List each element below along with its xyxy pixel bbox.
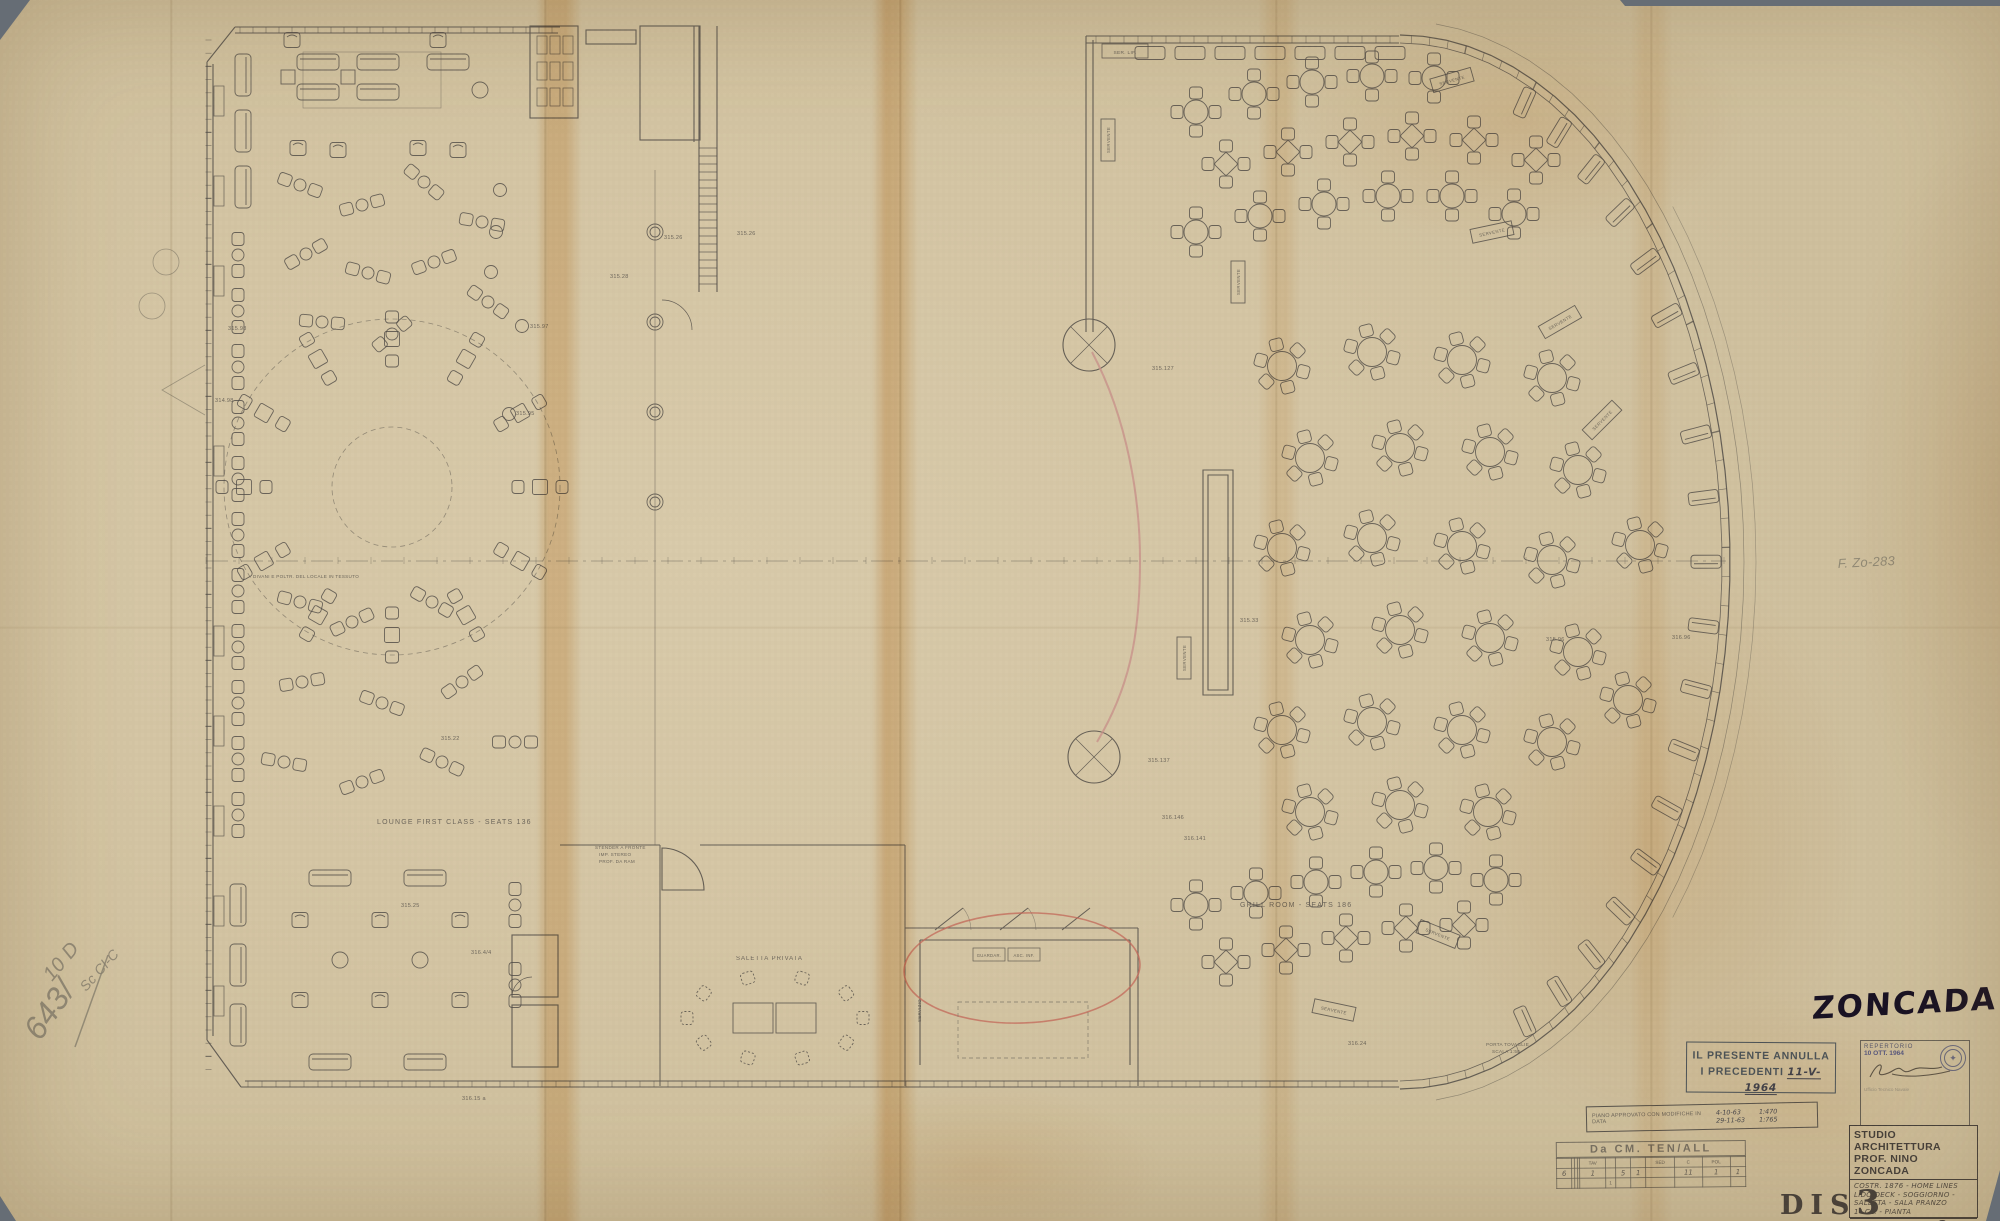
plan-furniture <box>329 607 375 637</box>
plan-furniture <box>371 315 413 353</box>
plan-furniture <box>1523 349 1580 406</box>
plan-furniture <box>1135 47 1165 60</box>
plan-annotation: SERVIZIO <box>917 999 922 1022</box>
plan-annotation: 315.26 <box>664 235 683 241</box>
plan-furniture <box>1630 848 1662 876</box>
cm-table-cell <box>1630 1158 1645 1168</box>
plan-furniture <box>1691 555 1721 568</box>
plan-furniture <box>1255 47 1285 60</box>
cm-table-cell <box>1556 1158 1571 1168</box>
plan-furniture <box>1229 69 1279 119</box>
plan-furniture <box>1253 519 1310 576</box>
cm-table-cell <box>1730 1157 1745 1167</box>
dis-number-label: DIS3 <box>1780 1183 1880 1221</box>
serving-station: SERVENTE <box>1177 637 1191 679</box>
cm-table-cell: TAV <box>1580 1158 1606 1168</box>
plan-annotation: 315.98 <box>228 326 247 332</box>
plan-furniture <box>292 993 308 1008</box>
emblem-stamp-icon: ✦ <box>1940 1045 1966 1071</box>
plan-furniture <box>1215 47 1245 60</box>
repertorio-stamp: REPERTORIO 10 OTT. 1964 ✦ Ufficio Tecnic… <box>1860 1040 1970 1126</box>
blueprint-sheet: SERVENTESERVENTESERVENTESERVENTESERVENTE… <box>0 0 2000 1221</box>
plan-furniture <box>385 332 400 347</box>
plan-furniture <box>1363 171 1413 221</box>
serving-station: SERVENTE <box>1101 119 1115 161</box>
serving-station: SERVENTE <box>1231 261 1245 303</box>
plan-annotation: 315.127 <box>1152 366 1174 372</box>
plan-furniture <box>1577 939 1606 971</box>
plan-furniture <box>403 163 445 201</box>
plan-furniture <box>1688 489 1719 506</box>
plan-furniture <box>1326 118 1374 166</box>
plan-furniture <box>1546 975 1573 1007</box>
plan-furniture <box>1427 171 1477 221</box>
plan-annotation: GRILL ROOM - SEATS 186 <box>1240 902 1352 909</box>
plan-furniture <box>372 993 388 1008</box>
plan-furniture <box>232 401 244 446</box>
repertorio-subtext: Ufficio Tecnico Navale <box>1864 1087 1966 1093</box>
plan-furniture <box>1629 247 1661 275</box>
plan-furniture <box>1450 116 1498 164</box>
cm-table-cell <box>1605 1158 1615 1168</box>
plan-annotation: 315.22 <box>441 736 460 742</box>
plan-furniture <box>1175 47 1205 60</box>
plan-furniture <box>1253 701 1310 758</box>
plan-furniture <box>427 54 469 70</box>
plan-furniture <box>235 54 251 96</box>
plan-furniture <box>1343 693 1400 750</box>
serving-station: SERVENTE <box>1312 999 1356 1021</box>
plan-furniture <box>357 84 399 100</box>
cm-table-cell <box>1730 1177 1745 1187</box>
plan-furniture <box>1459 783 1516 840</box>
dance-floor <box>224 319 560 655</box>
plan-furniture <box>1202 938 1250 986</box>
plan-furniture <box>456 605 476 625</box>
plan-annotation: PORTA TOVAGLIE <box>1486 1042 1529 1047</box>
plan-furniture <box>1523 713 1580 770</box>
plan-furniture <box>261 752 307 772</box>
plan-furniture <box>1512 136 1560 184</box>
plan-furniture <box>339 769 385 796</box>
plan-annotation: 315.137 <box>1148 758 1170 764</box>
plan-furniture <box>1287 57 1337 107</box>
plan-annotation: Sc Cl-C <box>76 945 122 994</box>
plan-furniture <box>1650 302 1683 328</box>
serving-station: SERVENTE <box>1538 305 1581 338</box>
plan-annotation: IMP. STEREO <box>599 852 631 857</box>
cm-table-cell <box>1606 1168 1616 1178</box>
cm-table-cell: 1 <box>1606 1178 1616 1188</box>
plan-furniture <box>1235 191 1285 241</box>
architect-name: PROF. NINO ZONCADA <box>1854 1153 1973 1177</box>
plan-furniture <box>235 166 251 208</box>
plan-furniture <box>232 345 244 390</box>
plan-furniture <box>1512 86 1536 119</box>
plan-furniture <box>1343 509 1400 566</box>
plan-furniture <box>308 605 328 625</box>
cm-table-cell <box>1616 1178 1631 1188</box>
cm-table-title: Da CM. TEN/ALL <box>1556 1140 1746 1158</box>
plan-furniture <box>1295 47 1325 60</box>
plan-furniture <box>1171 880 1221 930</box>
plan-furniture <box>232 625 244 670</box>
plan-furniture <box>1433 701 1490 758</box>
plan-furniture <box>1667 362 1700 385</box>
plan-annotation: 316.146 <box>1162 815 1184 821</box>
plan-annotation: GUARDAR. <box>977 953 1002 958</box>
plan-annotation: 315.96 <box>1546 637 1565 643</box>
plan-furniture <box>1347 51 1397 101</box>
plan-furniture <box>456 349 476 369</box>
plan-furniture <box>1253 337 1310 394</box>
cm-table-cell: 1 <box>1580 1168 1606 1178</box>
plan-furniture <box>1680 679 1712 699</box>
plan-furniture <box>410 141 426 156</box>
serving-station-label: SERVENTE <box>1236 269 1241 295</box>
plan-furniture <box>309 1054 351 1070</box>
plan-furniture <box>1513 1005 1537 1038</box>
plan-annotation: 643/ <box>16 971 84 1046</box>
plan-furniture <box>466 284 510 320</box>
plan-furniture <box>1440 901 1488 949</box>
plan-annotation: 316.4/4 <box>471 950 491 956</box>
cm-table-cell <box>1580 1178 1606 1188</box>
plan-furniture <box>1299 179 1349 229</box>
plan-annotation: SER. LIF. <box>1114 50 1137 56</box>
plan-furniture <box>254 403 274 423</box>
plan-furniture <box>1281 611 1338 668</box>
plan-annotation: ASC. INF. <box>1013 953 1034 958</box>
plan-furniture <box>235 110 251 152</box>
plan-furniture <box>410 586 455 619</box>
plan-annotation: SALETTA PRIVATA <box>736 956 803 962</box>
cancel-stamp: IL PRESENTE ANNULLA I PRECEDENTI 11-V-19… <box>1686 1041 1836 1093</box>
plan-furniture <box>1231 868 1281 918</box>
plan-furniture <box>230 1004 246 1046</box>
plan-furniture <box>1433 517 1490 574</box>
cm-table-cell <box>1631 1178 1646 1188</box>
plan-annotation: PROF. DA RAM <box>599 859 635 864</box>
serving-station-label: SERVENTE <box>1591 409 1613 431</box>
plan-furniture <box>1611 516 1668 573</box>
plan-furniture <box>1171 207 1221 257</box>
plan-annotation: LOUNGE FIRST CLASS - SEATS 136 <box>377 819 532 826</box>
approval-strip: PIANO APPROVATO CON MODIFICHE IN DATA 4-… <box>1586 1102 1818 1133</box>
plan-furniture <box>1202 140 1250 188</box>
plan-furniture <box>404 1054 446 1070</box>
cm-table-cell <box>1646 1167 1675 1177</box>
plan-furniture <box>1411 843 1461 893</box>
cm-table-cell: POL <box>1702 1157 1730 1167</box>
plan-furniture <box>230 944 246 986</box>
plan-furniture <box>385 628 400 643</box>
plan-annotation: 315.26 <box>737 231 756 237</box>
serving-station-label: SERVENTE <box>1106 127 1111 153</box>
serving-station-label: SERVENTE <box>1182 645 1187 671</box>
cm-table-cell <box>1675 1177 1703 1187</box>
plan-furniture <box>1461 423 1518 480</box>
plan-furniture <box>290 141 306 156</box>
plan-furniture <box>1651 795 1684 821</box>
plan-annotation: 316.24 <box>1348 1041 1367 1047</box>
plan-furniture <box>292 913 308 928</box>
cm-table-cell <box>1615 1158 1630 1168</box>
plan-furniture <box>359 690 405 717</box>
plan-furniture <box>430 33 446 48</box>
plan-furniture <box>357 54 399 70</box>
cm-table-cell <box>1646 1177 1675 1187</box>
plan-furniture <box>1471 855 1521 905</box>
deck-plan-drawing: SERVENTESERVENTESERVENTESERVENTESERVENTE… <box>0 0 2000 1221</box>
plan-annotation: SCALA 1:50 <box>1492 1049 1520 1054</box>
plan-furniture <box>1171 87 1221 137</box>
plan-annotation: 315.97 <box>530 324 549 330</box>
approval-date-bottom: 29-11-63 <box>1716 1116 1745 1125</box>
plan-furniture <box>509 963 521 1008</box>
plan-furniture <box>1688 618 1719 635</box>
approval-text: PIANO APPROVATO CON MODIFICHE IN DATA <box>1592 1111 1710 1125</box>
plan-furniture <box>230 884 246 926</box>
plan-furniture <box>1371 776 1428 833</box>
cm-table-grid: TAVSEDCPOL615111111 <box>1556 1156 1746 1189</box>
plan-furniture <box>1605 896 1636 926</box>
plan-annotation: 315.33 <box>1240 618 1259 624</box>
plan-furniture <box>1680 424 1712 444</box>
plan-furniture <box>509 883 521 928</box>
plan-furniture <box>232 793 244 838</box>
plan-furniture <box>1549 623 1606 680</box>
plan-furniture <box>459 212 505 232</box>
plan-annotation: 315.28 <box>610 274 629 280</box>
plan-furniture <box>1599 671 1656 728</box>
pink-curtain-line <box>1092 352 1140 742</box>
plan-furniture <box>232 513 244 558</box>
plan-furniture <box>493 736 538 748</box>
plan-furniture <box>1335 47 1365 60</box>
plan-furniture <box>452 913 468 928</box>
plan-furniture <box>1322 914 1370 962</box>
studio-name: STUDIO ARCHITETTURA <box>1854 1129 1973 1153</box>
plan-furniture <box>1264 128 1312 176</box>
plan-furniture <box>330 143 346 158</box>
serving-station: SERVENTE <box>1582 400 1622 440</box>
plan-furniture <box>1281 429 1338 486</box>
cm-table-cell: 1 <box>1702 1167 1730 1177</box>
plan-furniture <box>232 681 244 726</box>
plan-furniture <box>1523 531 1580 588</box>
plan-furniture <box>1433 331 1490 388</box>
plan-furniture <box>277 172 323 199</box>
red-pencil-ellipse <box>902 909 1142 1027</box>
plan-furniture <box>411 249 457 276</box>
plan-furniture <box>1577 153 1606 185</box>
serving-station-label: SERVENTE <box>1548 314 1573 331</box>
plan-annotation: 315.25 <box>401 903 420 909</box>
cm-table-cell <box>1702 1177 1730 1187</box>
plan-furniture <box>309 870 351 886</box>
serving-station-label: SERVENTE <box>1479 227 1506 237</box>
cm-table-cell <box>1557 1178 1572 1188</box>
plan-annotation: DIVANI E POLTR. DEL LOCALE IN TESSUTO <box>253 574 359 579</box>
plan-furniture <box>1262 926 1310 974</box>
plan-annotation: 316.96 <box>1672 635 1691 641</box>
plan-furniture <box>1371 601 1428 658</box>
plan-furniture <box>452 993 468 1008</box>
plan-furniture <box>1343 323 1400 380</box>
plan-annotation: 314.98 <box>215 398 234 404</box>
plan-furniture <box>1549 441 1606 498</box>
plan-furniture <box>1351 847 1401 897</box>
plan-annotation: 315.95 <box>516 411 535 417</box>
plan-furniture <box>533 480 548 495</box>
cm-table-cell: C <box>1675 1157 1703 1167</box>
plan-furniture <box>339 193 386 216</box>
plan-furniture <box>1388 112 1436 160</box>
plan-furniture <box>440 664 484 700</box>
cancel-stamp-line1: IL PRESENTE ANNULLA <box>1687 1047 1835 1064</box>
plan-annotation: 316.15 a <box>462 1096 486 1102</box>
plan-furniture <box>299 314 345 330</box>
plan-furniture <box>1667 738 1700 761</box>
plan-furniture <box>404 870 446 886</box>
plan-furniture <box>372 913 388 928</box>
cm-table-cell: 5 <box>1615 1168 1630 1178</box>
cancel-stamp-line2: I PRECEDENTI 11-V-1964 <box>1687 1063 1835 1096</box>
walls <box>139 26 1399 1087</box>
plan-furniture <box>277 590 324 613</box>
plan-furniture <box>284 238 329 271</box>
plan-furniture <box>1375 47 1405 60</box>
approval-scale-bottom: 1:765 <box>1759 1115 1778 1123</box>
cm-table-cell: 11 <box>1675 1167 1703 1177</box>
plan-furniture <box>1605 197 1636 227</box>
plan-annotation: F. Zo-283 <box>1837 553 1896 571</box>
plan-furniture <box>419 747 465 777</box>
cm-table: Da CM. TEN/ALL TAVSEDCPOL615111111 <box>1556 1140 1746 1189</box>
plan-furniture <box>1546 116 1573 148</box>
plan-furniture <box>1291 857 1341 907</box>
plan-furniture <box>279 672 325 692</box>
plan-furniture <box>284 33 300 48</box>
cm-table-cell: 1 <box>1631 1168 1646 1178</box>
plan-annotation: STENDER A FRONTE <box>595 845 646 850</box>
plan-furniture <box>450 143 466 158</box>
plan-furniture <box>1382 904 1430 952</box>
plan-furniture <box>1371 419 1428 476</box>
plan-furniture <box>308 349 328 369</box>
cm-table-cell: SED <box>1646 1157 1675 1167</box>
plan-furniture <box>345 261 392 284</box>
plan-furniture <box>1281 783 1338 840</box>
plan-furniture <box>232 233 244 278</box>
plan-furniture <box>232 737 244 782</box>
cm-table-cell: 6 <box>1557 1168 1572 1178</box>
plan-annotation: 316.141 <box>1184 836 1206 842</box>
plan-annotation: 10 D <box>39 938 84 985</box>
plan-furniture <box>232 569 244 614</box>
serving-station-label: SERVENTE <box>1321 1005 1348 1015</box>
cm-table-cell: 1 <box>1730 1167 1745 1177</box>
plan-furniture <box>1461 609 1518 666</box>
